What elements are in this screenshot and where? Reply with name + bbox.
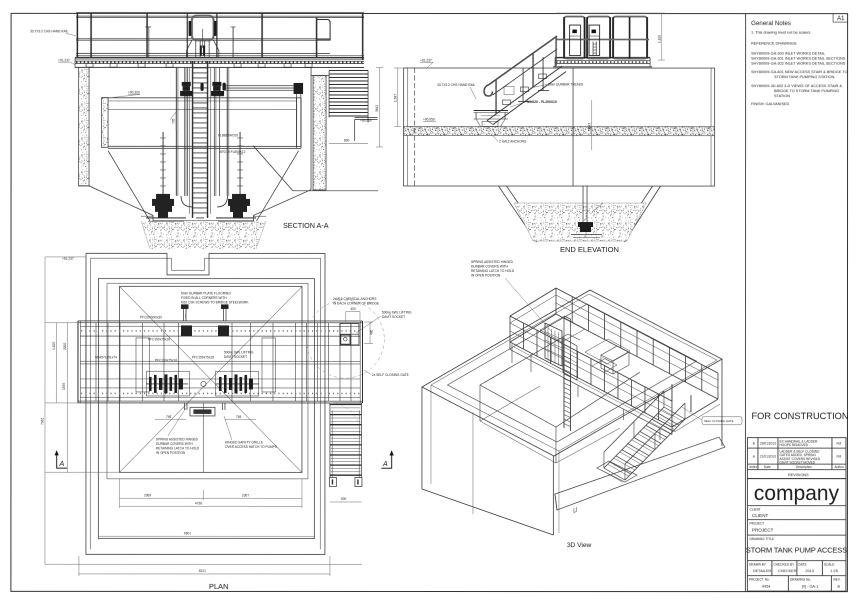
svg-text:SPRING ASSISTED HINGED: SPRING ASSISTED HINGED	[471, 260, 514, 264]
svg-text:Description: Description	[796, 465, 812, 469]
svg-text:M10 CSK SCREWS TO BRIDGE STEEL: M10 CSK SCREWS TO BRIDGE STEELWORK	[181, 300, 249, 304]
svg-text:SHY80009-3D-602 3-D VIEWS OF: SHY80009-3D-602 3-D VIEWS OF ACCESS STAI…	[751, 84, 842, 88]
svg-text:Date: Date	[764, 465, 771, 469]
svg-text:IN OPEN POSITION: IN OPEN POSITION	[471, 274, 501, 278]
svg-text:SHY80009-GA-601 NEW ACCESS S: SHY80009-GA-601 NEW ACCESS STAIR & BRIDG…	[751, 70, 847, 74]
svg-text:21/01/2013: 21/01/2013	[760, 455, 776, 459]
svg-text:1:25: 1:25	[830, 569, 837, 573]
svg-text:FM: FM	[836, 455, 841, 459]
svg-text:PROJECT: PROJECT	[749, 522, 764, 526]
svg-text:500kg SWL LIFTING: 500kg SWL LIFTING	[224, 350, 254, 354]
svg-text:UB457x191x74: UB457x191x74	[95, 355, 117, 359]
svg-text:CLIENT: CLIENT	[752, 513, 769, 518]
svg-text:1.100: 1.100	[52, 342, 56, 350]
svg-text:480: 480	[369, 329, 373, 335]
svg-text:REVISIONS: REVISIONS	[788, 473, 809, 477]
svg-text:A: A	[58, 459, 64, 468]
svg-text:DAVIT SOCKET: DAVIT SOCKET	[382, 315, 405, 319]
svg-text:General Notes: General Notes	[751, 20, 791, 27]
svg-text:+91.237: +91.237	[62, 257, 74, 261]
svg-text:PFC200x90x30: PFC200x90x30	[140, 315, 162, 319]
svg-text:+90.300: +90.300	[128, 90, 140, 94]
svg-text:SECTION A-A: SECTION A-A	[283, 221, 329, 230]
svg-text:2013: 2013	[805, 569, 813, 573]
svg-text:2367: 2367	[242, 493, 249, 497]
svg-text:HOOPS REMOVED: HOOPS REMOVED	[779, 443, 808, 447]
svg-text:STATION: STATION	[774, 94, 790, 98]
svg-text:BRIDGE TO STORM TANK PUMPING: BRIDGE TO STORM TANK PUMPING	[774, 89, 839, 93]
svg-text:DURBAR COVERS WITH: DURBAR COVERS WITH	[471, 265, 509, 269]
svg-text:STORM TANK PUMP ACCESS: STORM TANK PUMP ACCESS	[746, 546, 847, 555]
svg-text:A: A	[382, 459, 388, 468]
svg-text:PROJECT: PROJECT	[752, 528, 774, 533]
svg-text:HINGED SAFETY GRILLE: HINGED SAFETY GRILLE	[225, 440, 263, 444]
svg-text:FOR CONSTRUCTION: FOR CONSTRUCTION	[751, 411, 848, 421]
svg-text:33.7X3.2 CHS HAND RAIL: 33.7X3.2 CHS HAND RAIL	[437, 83, 475, 87]
svg-text:CHECKER: CHECKER	[778, 569, 797, 573]
svg-text:2xM16 CHEMICAL ANCHORS: 2xM16 CHEMICAL ANCHORS	[333, 297, 376, 301]
svg-text:+86.650: +86.650	[360, 118, 372, 122]
svg-text:6601: 6601	[184, 531, 191, 535]
svg-text:1.587: 1.587	[394, 94, 398, 102]
svg-text:3D View: 3D View	[567, 542, 592, 549]
svg-text:2x SELF CLOSING GATE: 2x SELF CLOSING GATE	[372, 373, 409, 377]
svg-text:6mm DURBAR PLATE FLOORING: 6mm DURBAR PLATE FLOORING	[181, 291, 231, 295]
svg-text:CHECKED BY: CHECKED BY	[773, 563, 795, 567]
svg-text:DATE: DATE	[798, 563, 806, 567]
svg-text:+90.650: +90.650	[423, 117, 435, 121]
svg-text:FM: FM	[836, 442, 841, 446]
svg-text:29/01/2013: 29/01/2013	[760, 442, 776, 446]
svg-text:FIXED IN ALL CORNERS WITH: FIXED IN ALL CORNERS WITH	[181, 296, 227, 300]
svg-text:IN OPEN POSITION: IN OPEN POSITION	[156, 451, 186, 455]
svg-text:500kg SWL LIFTING: 500kg SWL LIFTING	[382, 310, 412, 314]
svg-text:DAVIT SOCKET MOVED: DAVIT SOCKET MOVED	[779, 461, 815, 465]
svg-text:SHY80009-GA-300 INLET WORKS: SHY80009-GA-300 INLET WORKS DETAIL	[751, 52, 825, 56]
svg-text:END ELEVATION: END ELEVATION	[560, 245, 619, 254]
svg-text:REV.: REV.	[833, 578, 840, 582]
svg-text:RETAINING LATCH TO HOLD: RETAINING LATCH TO HOLD	[471, 269, 515, 273]
svg-text:2369: 2369	[144, 493, 151, 497]
svg-text:+91.237: +91.237	[420, 58, 432, 62]
svg-text:SPRING ASSISTED HINGED: SPRING ASSISTED HINGED	[156, 437, 199, 441]
svg-text:MH020 - FL200X10: MH020 - FL200X10	[527, 100, 557, 104]
svg-text:DAVIT SOCKET: DAVIT SOCKET	[224, 355, 247, 359]
svg-text:FL6880/HO20: FL6880/HO20	[218, 133, 238, 137]
svg-text:748: 748	[166, 415, 172, 419]
svg-text:B: B	[753, 442, 755, 446]
svg-text:4736: 4736	[195, 501, 202, 505]
svg-text:CLIENT: CLIENT	[749, 508, 760, 512]
svg-text:company: company	[754, 482, 840, 505]
svg-text:1. This drawing must not be s: 1. This drawing must not be scaled.	[751, 31, 811, 35]
svg-text:800: 800	[344, 138, 350, 142]
svg-text:735: 735	[172, 118, 176, 124]
svg-text:PFC150x75x18: PFC150x75x18	[155, 358, 177, 362]
svg-text:SELF CLOSING GATE: SELF CLOSING GATE	[704, 419, 734, 423]
svg-text:9454: 9454	[762, 585, 770, 589]
svg-text:3643: 3643	[588, 123, 592, 130]
svg-text:OVER ACCESS HATCH TO PUMPS: OVER ACCESS HATCH TO PUMPS	[225, 445, 277, 449]
svg-text:SHY80009-GA-302 INLET WORKS: SHY80009-GA-302 INLET WORKS DETAIL SECTI…	[751, 62, 846, 66]
svg-text:DRAWING No.: DRAWING No.	[790, 578, 811, 582]
svg-text:+91.237: +91.237	[58, 58, 70, 62]
svg-text:1595: 1595	[62, 383, 66, 390]
svg-text:PFC150x75x18: PFC150x75x18	[148, 337, 170, 341]
svg-text:FINISH: GALVANISED: FINISH: GALVANISED	[751, 102, 790, 106]
svg-text:2 xM12 ANCHORS: 2 xM12 ANCHORS	[499, 140, 526, 144]
svg-text:33.7X3.2 CHS HAND RAIL: 33.7X3.2 CHS HAND RAIL	[30, 29, 68, 33]
svg-text:748: 748	[236, 415, 242, 419]
svg-text:SHY80009-GA-301 INLET WORKS: SHY80009-GA-301 INLET WORKS DETAIL SECTI…	[751, 57, 846, 61]
svg-text:8121: 8121	[199, 569, 206, 573]
svg-text:PFC150x75x18: PFC150x75x18	[192, 355, 214, 359]
svg-text:REFERENCE DRAWINGS:: REFERENCE DRAWINGS:	[751, 42, 797, 46]
svg-text:3642: 3642	[375, 105, 379, 112]
svg-text:DURBAR COVERS WITH: DURBAR COVERS WITH	[156, 442, 194, 446]
svg-text:8mm DURBAR TREADS: 8mm DURBAR TREADS	[548, 83, 583, 87]
svg-text:900: 900	[341, 497, 347, 501]
svg-text:7962: 7962	[40, 418, 44, 425]
svg-text:B: B	[837, 585, 840, 589]
svg-text:1.100: 1.100	[658, 35, 662, 43]
svg-text:STORM TANK PUMPING STATION.: STORM TANK PUMPING STATION.	[774, 75, 835, 79]
svg-text:DETAILER: DETAILER	[753, 569, 772, 573]
svg-text:PLAN: PLAN	[209, 582, 229, 591]
svg-text:RETAINING LATCH TO HOLD: RETAINING LATCH TO HOLD	[156, 446, 200, 450]
svg-text:400: 400	[350, 307, 356, 311]
svg-text:SCALE: SCALE	[824, 563, 834, 567]
svg-text:DRAWING TITLE: DRAWING TITLE	[749, 537, 774, 541]
svg-text:Author: Author	[834, 465, 844, 469]
svg-text:IN EACH CORNER OF BRIDGE: IN EACH CORNER OF BRIDGE	[333, 301, 379, 305]
svg-text:870/10 FL800X12: 870/10 FL800X12	[220, 150, 246, 154]
svg-text:2000: 2000	[63, 343, 67, 350]
svg-text:[0] - GA-1: [0] - GA-1	[802, 585, 818, 589]
svg-text:DRAWN BY: DRAWN BY	[749, 563, 767, 567]
svg-text:PROJECT No.: PROJECT No.	[749, 578, 770, 582]
svg-text:Index: Index	[749, 465, 757, 469]
svg-text:A1: A1	[837, 16, 845, 22]
